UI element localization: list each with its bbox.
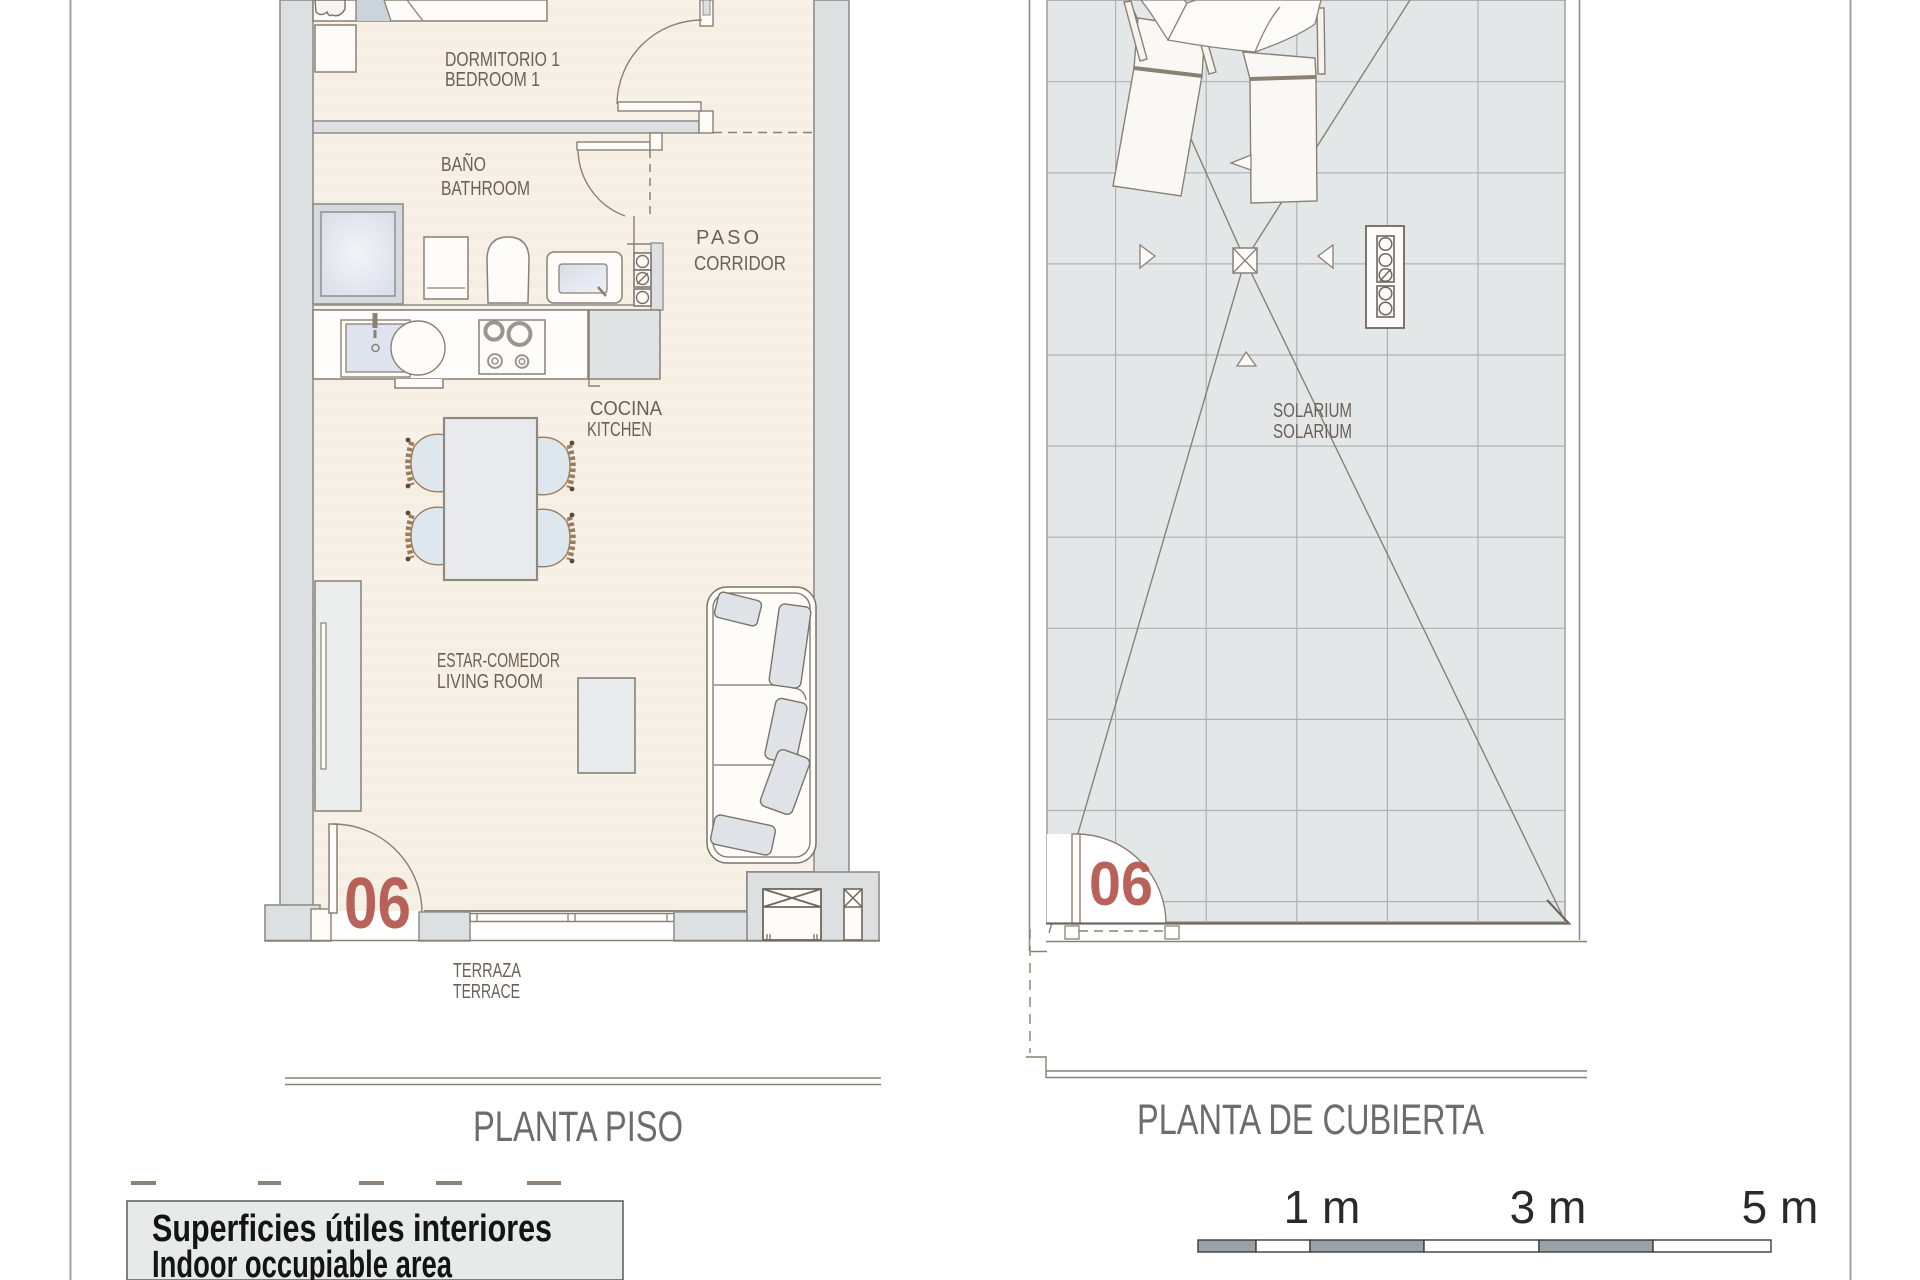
svg-text:Indoor occupiable area: Indoor occupiable area: [152, 1244, 453, 1280]
svg-text:3 m: 3 m: [1510, 1181, 1587, 1233]
svg-text:COCINA: COCINA: [590, 398, 663, 420]
svg-text:TERRAZA: TERRAZA: [453, 960, 521, 982]
svg-text:PLANTA PISO: PLANTA PISO: [473, 1103, 683, 1151]
svg-text:1 m: 1 m: [1284, 1181, 1361, 1233]
svg-text:BEDROOM 1: BEDROOM 1: [445, 69, 540, 91]
svg-text:SOLARIUM: SOLARIUM: [1273, 400, 1352, 422]
svg-text:PASO: PASO: [696, 227, 759, 249]
svg-text:LIVING ROOM: LIVING ROOM: [437, 671, 543, 693]
svg-text:06: 06: [344, 864, 411, 944]
svg-text:BATHROOM: BATHROOM: [441, 178, 530, 200]
svg-text:PLANTA DE CUBIERTA: PLANTA DE CUBIERTA: [1137, 1096, 1484, 1144]
svg-text:BAÑO: BAÑO: [441, 152, 486, 176]
svg-text:TERRACE: TERRACE: [453, 981, 520, 1003]
svg-text:KITCHEN: KITCHEN: [587, 419, 652, 441]
svg-text:06: 06: [1089, 850, 1153, 919]
svg-text:5 m: 5 m: [1742, 1181, 1819, 1233]
svg-text:DORMITORIO 1: DORMITORIO 1: [445, 49, 560, 71]
svg-text:SOLARIUM: SOLARIUM: [1273, 421, 1352, 443]
svg-text:CORRIDOR: CORRIDOR: [694, 253, 786, 275]
svg-text:ESTAR-COMEDOR: ESTAR-COMEDOR: [437, 650, 560, 672]
